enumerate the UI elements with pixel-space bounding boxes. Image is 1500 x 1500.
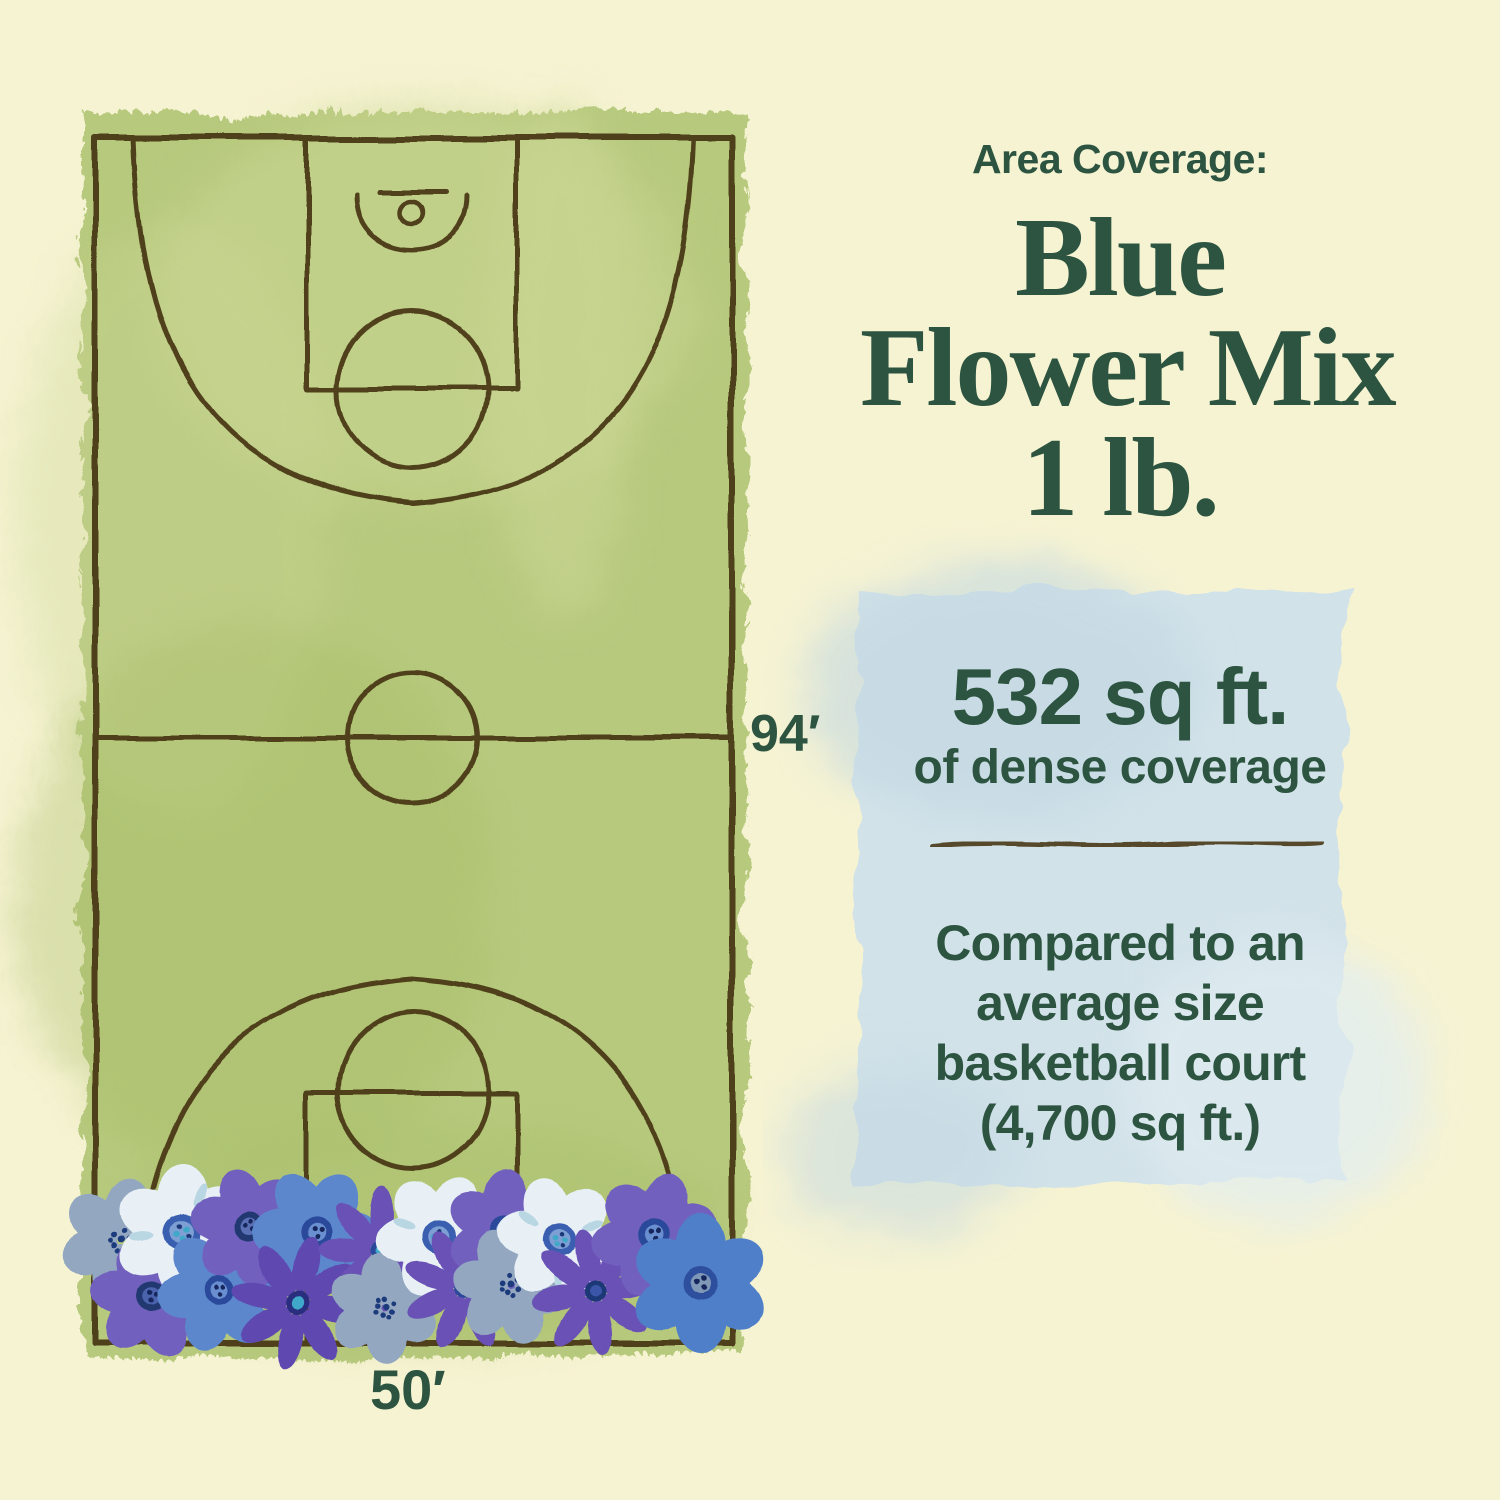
hand-drawn-divider — [932, 842, 1322, 846]
comparison-line: Compared to an — [875, 913, 1365, 973]
basketball-court-illustration — [10, 100, 773, 1388]
area-coverage-label: Area Coverage: — [860, 136, 1380, 183]
coverage-headline: 532 sq ft. — [875, 651, 1365, 743]
comparison-line: basketball court — [875, 1033, 1365, 1093]
court-length-label: 94′ — [750, 704, 820, 764]
product-title-line: 1 lb. — [860, 423, 1380, 533]
product-title-line: Flower Mix — [860, 313, 1380, 423]
comparison-line: (4,700 sq ft.) — [875, 1093, 1365, 1153]
product-title: Blue Flower Mix 1 lb. — [860, 203, 1380, 533]
coverage-subheadline: of dense coverage — [875, 740, 1365, 795]
infographic: Area Coverage: Blue Flower Mix 1 lb. 94′… — [0, 0, 1500, 1500]
product-title-line: Blue — [860, 203, 1380, 313]
comparison-line: average size — [875, 973, 1365, 1033]
court-width-label: 50′ — [370, 1357, 446, 1422]
comparison-text: Compared to an average size basketball c… — [875, 913, 1365, 1153]
